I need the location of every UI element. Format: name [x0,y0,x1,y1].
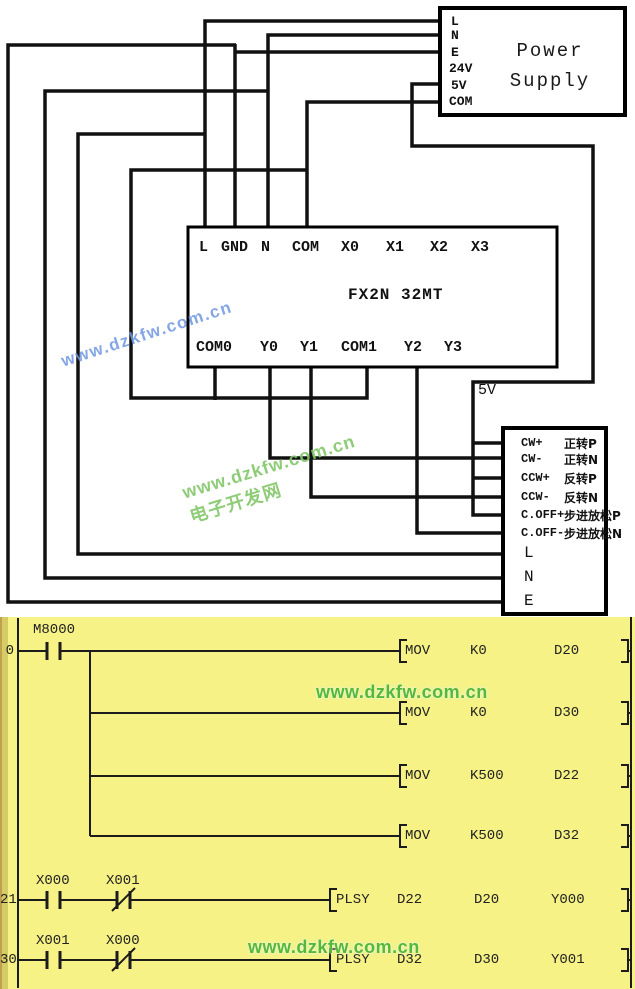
driver-terminal-coff-minus: C.OFF- [521,526,564,540]
driver-terminal-coff-plus: C.OFF+ [521,508,564,522]
mov4-dest: D32 [554,828,579,844]
ladder-contacts [47,642,130,969]
rung21-contact1-label: X000 [36,873,70,889]
rung30-contact2-label: X000 [106,933,140,949]
ps-terminal-E: E [451,45,459,60]
plc-model: FX2N 32MT [348,286,443,304]
plc-top-terminal-X3: X3 [471,239,489,256]
rung0-lines [18,651,400,836]
plc-top-terminal-L: L [199,239,208,256]
mov2-source: K0 [470,705,487,721]
plc-top-terminal-X2: X2 [430,239,448,256]
contact-x001-r30 [47,951,60,969]
plsy1-dest: Y000 [551,892,585,908]
driver-terminal-L: L [524,544,534,562]
mov2-dest: D30 [554,705,579,721]
plsy1-s1: D22 [397,892,422,908]
plsy1-s2: D20 [474,892,499,908]
contact-m8000 [47,642,60,660]
bracket-mov3 [400,765,632,787]
power-supply-title-line1: Power [500,40,600,62]
driver-terminal-ccw-minus-cn: 反转N [564,489,598,506]
plsy2-dest: Y001 [551,952,585,968]
plc-top-terminal-GND: GND [221,239,248,256]
bracket-mov4 [400,825,632,847]
mov2-op: MOV [405,705,430,721]
driver-terminal-coff-minus-cn: 步进放松N [564,525,622,542]
ps-terminal-N: N [451,28,459,43]
plc-bottom-terminal-Y1: Y1 [300,339,318,356]
driver-terminal-coff-plus-cn: 步进放松P [564,507,621,524]
five-v-label: 5V [478,382,496,399]
mov3-source: K500 [470,768,504,784]
mov4-source: K500 [470,828,504,844]
driver-terminal-cw-minus: CW- [521,452,543,466]
plc-top-terminal-X1: X1 [386,239,404,256]
driver-terminal-cw-plus: CW+ [521,436,543,450]
plc-bottom-terminal-COM1: COM1 [341,339,377,356]
rung21-contact2-label: X001 [106,873,140,889]
plc-bottom-terminal-COM0: COM0 [196,339,232,356]
ps-terminal-COM: COM [449,94,472,109]
bracket-mov1 [400,640,632,662]
driver-terminal-ccw-minus: CCW- [521,490,550,504]
driver-terminal-ccw-plus: CCW+ [521,471,550,485]
driver-terminal-cw-plus-cn: 正转P [564,435,597,452]
driver-terminal-N: N [524,568,534,586]
plsy1-op: PLSY [336,892,370,908]
driver-terminal-E: E [524,592,534,610]
ps-terminal-L: L [451,14,459,29]
mov3-dest: D22 [554,768,579,784]
mov1-op: MOV [405,643,430,659]
plc-bottom-terminal-Y0: Y0 [260,339,278,356]
watermark-ladder-top: www.dzkfw.com.cn [316,682,488,703]
rung0-number: 0 [0,643,14,659]
mov4-op: MOV [405,828,430,844]
plc-bottom-terminal-Y3: Y3 [444,339,462,356]
plc-top-terminal-COM: COM [292,239,319,256]
bracket-mov2 [400,702,632,724]
device-boxes [188,8,625,614]
mov1-dest: D20 [554,643,579,659]
mov3-op: MOV [405,768,430,784]
mov1-source: K0 [470,643,487,659]
rung30-contact1-label: X001 [36,933,70,949]
plc-top-terminal-N: N [261,239,270,256]
ps-terminal-5V: 5V [451,78,467,93]
plc-bottom-terminal-Y2: Y2 [404,339,422,356]
watermark-ladder-bottom: www.dzkfw.com.cn [248,937,420,958]
rung30-number: 30 [0,952,15,968]
contact-x000-r21 [47,891,60,909]
power-supply-title-line2: Supply [500,70,600,92]
rung21-number: 21 [0,892,15,908]
rung0-contact-label: M8000 [33,622,75,638]
screenshot-root: L N E 24V 5V COM Power Supply L GND N CO… [0,0,635,989]
driver-terminal-ccw-plus-cn: 反转P [564,470,597,487]
driver-terminal-cw-minus-cn: 正转N [564,451,598,468]
plsy2-s2: D30 [474,952,499,968]
ps-terminal-24V: 24V [449,61,472,76]
plc-top-terminal-X0: X0 [341,239,359,256]
